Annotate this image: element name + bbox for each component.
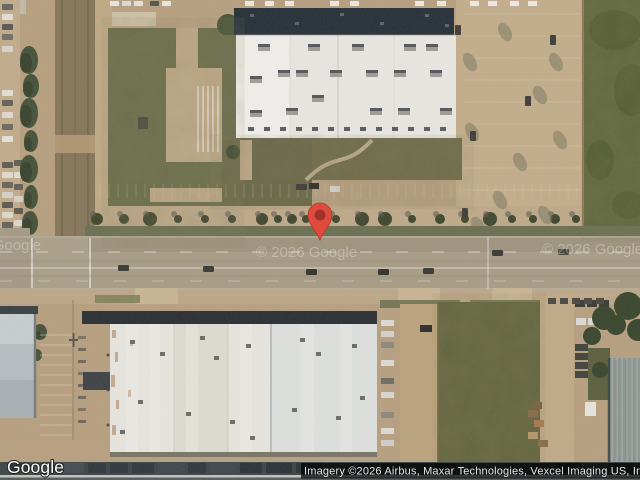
- svg-text:Imagery ©2026 Airbus, Maxar Te: Imagery ©2026 Airbus, Maxar Technologies…: [304, 466, 640, 478]
- svg-text:Google: Google: [7, 457, 64, 477]
